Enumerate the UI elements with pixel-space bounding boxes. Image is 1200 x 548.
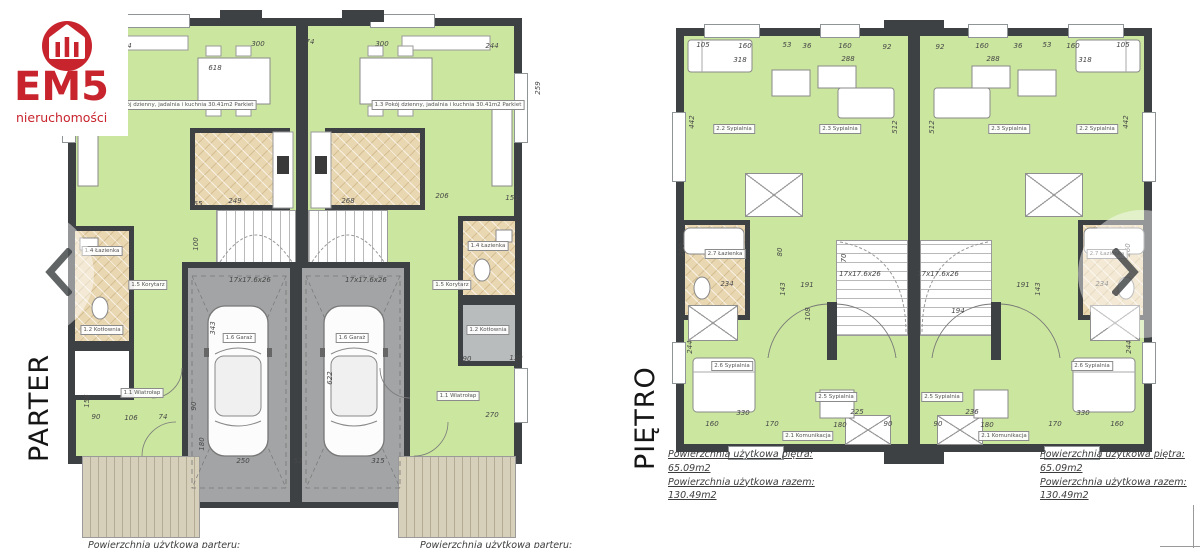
dimension-label: 90	[463, 355, 472, 363]
dimension-label: 92	[883, 43, 892, 51]
dimension-label: 90	[934, 420, 943, 428]
dimension-label: 143	[1034, 282, 1042, 295]
dimension-label: 108	[804, 307, 812, 320]
dimension-label: 618	[208, 64, 221, 72]
dimension-label: 156	[83, 394, 91, 407]
room-label: 1.2 Kotłownia	[80, 325, 123, 335]
dimension-label: 139	[509, 354, 522, 362]
room-label: 1.5 Korytarz	[128, 280, 167, 290]
dimension-label: 65	[194, 200, 203, 208]
dimension-label: 143	[779, 282, 787, 295]
dimension-label: 105	[1116, 41, 1129, 49]
area-line: Powierzchnia użytkowa piętra:	[668, 448, 815, 462]
dimension-label: 194	[951, 307, 964, 315]
room-label: 1.1 Wiatrołap	[121, 388, 164, 398]
dimension-label: 160	[1110, 420, 1123, 428]
dimension-label: 53	[1043, 41, 1052, 49]
dimension-label: 106	[124, 414, 137, 422]
dimension-label: 250	[236, 457, 249, 465]
dimension-label: 170	[765, 420, 778, 428]
dimension-label: 90	[884, 420, 893, 428]
dimension-label: 225	[850, 408, 863, 416]
dimension-label: 318	[733, 56, 746, 64]
room-label: 2.3 Sypialnia	[819, 124, 861, 134]
dimension-label: 160	[738, 42, 751, 50]
dimension-label: 170	[1048, 420, 1061, 428]
room-label: 1.6 Garaż	[336, 333, 369, 343]
dimension-label: 74	[159, 413, 168, 421]
room-label: 2.5 Sypialnia	[815, 392, 857, 402]
dimension-label: 70	[840, 254, 848, 263]
dimension-label: 343	[209, 321, 217, 334]
area-summary-right-unit: Powierzchnia użytkowa piętra: 65.09m2 Po…	[1040, 448, 1187, 503]
dimension-label: 53	[783, 41, 792, 49]
dimension-label: 315	[371, 457, 384, 465]
dimension-label: 442	[688, 115, 696, 128]
dimension-label: 330	[1076, 409, 1089, 417]
dimension-label: 36	[803, 42, 812, 50]
dimension-label: 512	[891, 120, 899, 133]
area-value: 130.49m2	[668, 489, 815, 503]
area-value: 65.09m2	[1040, 462, 1187, 476]
dimension-label: 17x17.6x26	[229, 276, 271, 284]
dimension-label: 160	[705, 420, 718, 428]
dimension-label: 17x17.6x26	[345, 276, 387, 284]
dimension-label: 259	[534, 81, 542, 94]
dimension-label: 92	[936, 43, 945, 51]
floor-label-parter: PARTER	[24, 354, 55, 462]
room-label: 1.6 Garaż	[223, 333, 256, 343]
brand-tagline: nieruchomości	[16, 110, 107, 125]
dimension-label: 36	[1014, 42, 1023, 50]
dimension-label: 270	[485, 411, 498, 419]
dimension-label: 160	[1066, 42, 1079, 50]
dimension-label: 151	[505, 194, 518, 202]
room-label: 2.7 Łazienka	[705, 249, 746, 259]
dimension-label: 318	[1078, 56, 1091, 64]
chevron-left-icon[interactable]	[44, 248, 72, 296]
area-line: Powierzchnia użytkowa piętra:	[1040, 448, 1187, 462]
dimension-label: 622	[326, 371, 334, 384]
dimension-label: 90	[92, 413, 101, 421]
area-line: Powierzchnia użytkowa razem:	[668, 476, 815, 490]
dimension-label: 300	[375, 40, 388, 48]
dimension-label: 52	[294, 457, 303, 465]
room-label: 1.4 Łazienka	[468, 241, 509, 251]
corner-mark	[1160, 546, 1200, 547]
dimension-label: 180	[198, 437, 206, 450]
room-label: 1.2 Kotłownia	[466, 325, 509, 335]
dimension-label: 17x17.6x26	[917, 270, 959, 278]
dimension-label: 160	[975, 42, 988, 50]
room-label: 1.1 Wiatrołap	[437, 391, 480, 401]
area-line: Powierzchnia użytkowa razem:	[1040, 476, 1187, 490]
brand-name: EM5	[14, 64, 109, 110]
floor-label-pietro: PIĘTRO	[630, 366, 661, 470]
dimension-label: 206	[435, 192, 448, 200]
room-label: 1.5 Korytarz	[432, 280, 471, 290]
dimension-label: 180	[833, 421, 846, 429]
room-label: 2.1 Komunikacja	[782, 431, 833, 441]
dimension-label: 512	[928, 120, 936, 133]
dimension-label: 244	[485, 42, 498, 50]
room-label: 1.3 Pokój dzienny, jadalnia i kuchnia 30…	[372, 100, 525, 110]
dimension-label: 191	[800, 281, 813, 289]
dimension-label: 268	[341, 197, 354, 205]
dimension-label: 236	[965, 408, 978, 416]
dimension-label: 90	[190, 402, 198, 411]
dimension-label: 288	[986, 55, 999, 63]
dimension-label: 442	[1122, 115, 1130, 128]
room-label: 2.6 Sypialnia	[1071, 361, 1113, 371]
dimension-label: 244	[686, 340, 694, 353]
caption-parter-left: Powierzchnia użytkowa parteru:	[88, 540, 240, 548]
dimension-label: 244	[1125, 340, 1133, 353]
dimension-label: 17x17.6x26	[839, 270, 881, 278]
room-label: 2.3 Sypialnia	[988, 124, 1030, 134]
dimension-label: 160	[838, 42, 851, 50]
dimension-label: 80	[776, 248, 784, 257]
dimension-label: 260	[678, 243, 686, 256]
room-label: 2.5 Sypialnia	[921, 392, 963, 402]
dimension-label: 234	[720, 280, 733, 288]
dimension-label: 330	[736, 409, 749, 417]
area-summary-left-unit: Powierzchnia użytkowa piętra: 65.09m2 Po…	[668, 448, 815, 503]
dimension-label: 300	[251, 40, 264, 48]
room-label: 2.2 Sypialnia	[1076, 124, 1118, 134]
dimension-label: 100	[192, 237, 200, 250]
area-value: 65.09m2	[668, 462, 815, 476]
room-label: 2.6 Sypialnia	[711, 361, 753, 371]
dimension-label: 288	[841, 55, 854, 63]
dimension-label: 249	[228, 197, 241, 205]
area-value: 130.49m2	[1040, 489, 1187, 503]
chevron-right-icon[interactable]	[1112, 248, 1140, 296]
corner-mark	[1193, 505, 1194, 548]
caption-parter-right: Powierzchnia użytkowa parteru:	[420, 540, 572, 548]
room-label: 2.1 Komunikacja	[978, 431, 1029, 441]
room-label: 2.2 Sypialnia	[713, 124, 755, 134]
dimension-label: 74	[306, 38, 315, 46]
dimension-label: 105	[696, 41, 709, 49]
dimension-label: 180	[980, 421, 993, 429]
dimension-label: 191	[1016, 281, 1029, 289]
